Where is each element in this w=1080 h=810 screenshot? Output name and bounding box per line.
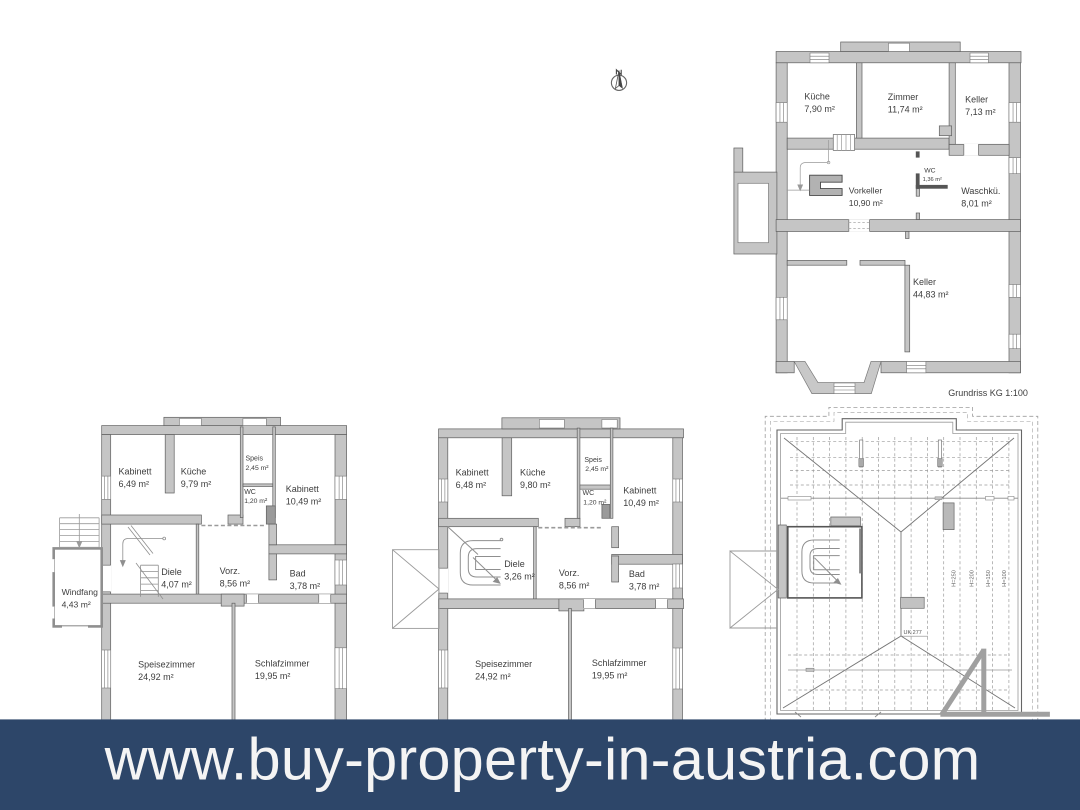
- svg-text:9,80 m²: 9,80 m²: [520, 480, 551, 490]
- svg-text:Vorkeller: Vorkeller: [849, 186, 883, 196]
- svg-text:Keller: Keller: [965, 95, 988, 105]
- svg-text:Diele: Diele: [504, 559, 525, 569]
- svg-text:Küche: Küche: [520, 468, 546, 478]
- svg-text:H=250: H=250: [952, 570, 958, 587]
- svg-text:WC: WC: [583, 490, 595, 497]
- svg-text:7,90 m²: 7,90 m²: [804, 104, 835, 114]
- svg-text:19,95 m²: 19,95 m²: [592, 671, 628, 681]
- svg-text:Speis: Speis: [584, 457, 602, 464]
- svg-text:10,49 m²: 10,49 m²: [286, 497, 322, 507]
- svg-text:24,92 m²: 24,92 m²: [138, 672, 174, 682]
- svg-text:7,13 m²: 7,13 m²: [965, 107, 996, 117]
- svg-text:Bad: Bad: [290, 569, 306, 579]
- svg-text:H=100: H=100: [1002, 570, 1008, 587]
- svg-text:8,01 m²: 8,01 m²: [961, 199, 992, 209]
- svg-text:Küche: Küche: [804, 92, 830, 102]
- svg-text:3,26 m²: 3,26 m²: [504, 572, 535, 582]
- svg-text:4,43 m²: 4,43 m²: [62, 600, 91, 610]
- svg-text:Waschkü.: Waschkü.: [961, 186, 1000, 196]
- svg-text:Diele: Diele: [161, 567, 182, 577]
- svg-text:Speisezimmer: Speisezimmer: [138, 660, 195, 670]
- svg-text:Kabinett: Kabinett: [119, 467, 153, 477]
- svg-text:3,78 m²: 3,78 m²: [629, 582, 660, 592]
- svg-text:Schlafzimmer: Schlafzimmer: [592, 658, 647, 668]
- svg-text:11,74 m²: 11,74 m²: [888, 105, 923, 115]
- svg-text:6,48 m²: 6,48 m²: [456, 480, 487, 490]
- svg-text:Keller: Keller: [913, 277, 936, 287]
- svg-text:Bad: Bad: [629, 569, 645, 579]
- svg-text:44,83 m²: 44,83 m²: [913, 290, 949, 300]
- svg-text:Speisezimmer: Speisezimmer: [475, 659, 532, 669]
- svg-text:6,49 m²: 6,49 m²: [119, 479, 150, 489]
- svg-text:Küche: Küche: [181, 467, 207, 477]
- svg-text:UK 277: UK 277: [904, 630, 922, 636]
- svg-text:H=200: H=200: [970, 570, 976, 587]
- svg-text:1,20 m²: 1,20 m²: [583, 499, 607, 506]
- svg-text:Windfang: Windfang: [62, 587, 99, 597]
- svg-text:Kabinett: Kabinett: [456, 468, 490, 478]
- svg-text:1,20 m²: 1,20 m²: [244, 498, 268, 505]
- svg-text:10,49 m²: 10,49 m²: [623, 498, 659, 508]
- svg-text:8,56 m²: 8,56 m²: [220, 579, 251, 589]
- svg-text:Vorz.: Vorz.: [220, 566, 241, 576]
- svg-text:3,78 m²: 3,78 m²: [290, 581, 321, 591]
- svg-text:Kabinett: Kabinett: [286, 484, 320, 494]
- svg-text:Zimmer: Zimmer: [888, 92, 919, 102]
- svg-text:www.buy-property-in-austria.co: www.buy-property-in-austria.com: [104, 726, 981, 793]
- svg-text:2,45 m²: 2,45 m²: [585, 466, 609, 473]
- svg-text:9,79 m²: 9,79 m²: [181, 479, 212, 489]
- svg-text:10,90 m²: 10,90 m²: [849, 198, 883, 208]
- svg-text:24,92 m²: 24,92 m²: [475, 672, 511, 682]
- svg-text:WC: WC: [244, 489, 256, 496]
- svg-text:WC: WC: [924, 168, 935, 175]
- svg-text:Vorz.: Vorz.: [559, 568, 580, 578]
- svg-text:2,45 m²: 2,45 m²: [246, 465, 270, 472]
- svg-text:Speis: Speis: [246, 456, 264, 463]
- svg-text:Schlafzimmer: Schlafzimmer: [255, 659, 310, 669]
- svg-text:Grundriss KG 1:100: Grundriss KG 1:100: [948, 388, 1028, 398]
- svg-text:Kabinett: Kabinett: [623, 486, 657, 496]
- svg-text:H=150: H=150: [986, 570, 992, 587]
- svg-text:1,36 m²: 1,36 m²: [923, 177, 942, 183]
- svg-text:19,95 m²: 19,95 m²: [255, 671, 291, 681]
- svg-text:8,56 m²: 8,56 m²: [559, 581, 590, 591]
- svg-text:4,07 m²: 4,07 m²: [161, 580, 192, 590]
